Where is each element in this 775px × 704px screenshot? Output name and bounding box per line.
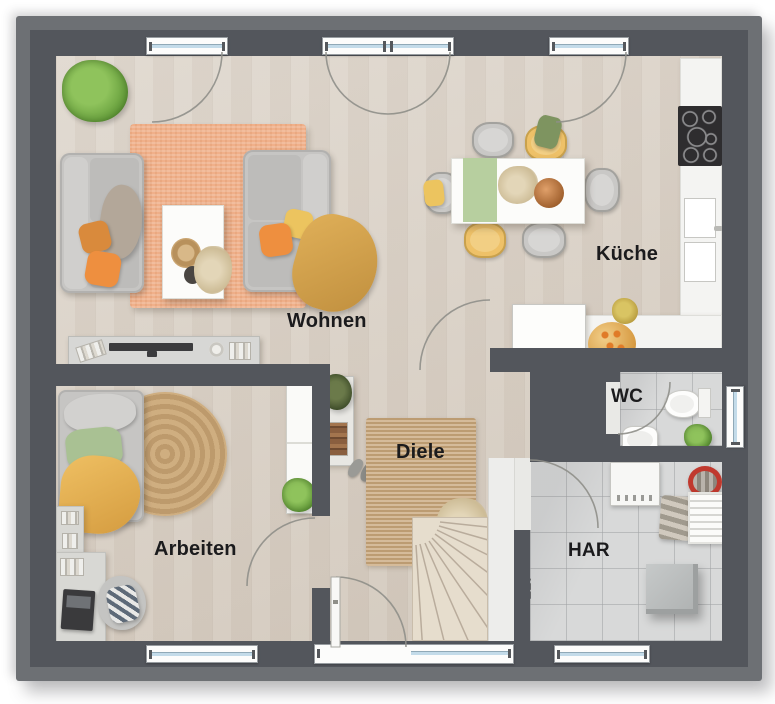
- flower-sprig: [612, 298, 638, 324]
- window-wohnen-double: [322, 37, 454, 55]
- laptop: [61, 589, 96, 631]
- winder-staircase: [412, 517, 488, 641]
- wall-core-block: [530, 348, 606, 462]
- dining-chair: [584, 168, 620, 212]
- washing-machine: [610, 462, 660, 506]
- window-arbeiten: [146, 645, 258, 663]
- room-label-wc: WC: [611, 386, 643, 408]
- books: [60, 558, 84, 576]
- wall-kueche-diele: [490, 348, 530, 372]
- floor-plan: Wohnen Küche Arbeiten Die: [0, 0, 775, 704]
- dining-chair: [522, 222, 566, 258]
- wall-right: [722, 56, 748, 641]
- table-runner: [463, 158, 497, 222]
- window-wohnen-left: [146, 37, 228, 55]
- laptop-screen: [66, 595, 91, 609]
- room-label-kueche: Küche: [596, 243, 658, 266]
- har-door-threshold: [514, 458, 531, 530]
- wall-arbeiten-diele-upper: [312, 364, 330, 516]
- stair-stringer: [488, 458, 515, 641]
- books: [75, 339, 107, 363]
- room-label-arbeiten: Arbeiten: [154, 538, 237, 561]
- window-kueche: [549, 37, 629, 55]
- drying-rack: [688, 492, 724, 544]
- books: [62, 533, 78, 549]
- wall-wohnen-arbeiten: [56, 364, 312, 386]
- toilet-tank: [698, 388, 711, 418]
- room-label-diele: Diele: [396, 441, 445, 464]
- copper-bowl: [534, 178, 564, 208]
- chair-throw-yellow: [423, 179, 446, 207]
- toilet: [664, 390, 700, 418]
- palm-plant: [62, 60, 128, 122]
- wardrobe-seam: [287, 442, 313, 444]
- entrance-door-frame: [314, 644, 514, 664]
- cooktop: [678, 106, 722, 166]
- tv-stand: [147, 351, 157, 357]
- window-wc: [726, 386, 744, 448]
- kitchen-sink: [684, 242, 716, 282]
- office-plant: [282, 478, 316, 512]
- kitchen-sink: [684, 198, 716, 238]
- dining-chair: [472, 122, 514, 158]
- tv: [109, 343, 193, 351]
- stacked-books: [328, 422, 348, 456]
- orange-pillow: [83, 249, 122, 288]
- wall-kueche-wc: [606, 348, 722, 372]
- books: [61, 511, 79, 525]
- sideboard-tv: [68, 336, 260, 365]
- wall-shelf: [56, 506, 84, 556]
- wall-wc-har: [606, 446, 722, 462]
- room-label-har: HAR: [568, 540, 610, 562]
- wall-stairs-har: [514, 530, 530, 641]
- orange-pillow: [258, 222, 294, 258]
- window-har: [554, 645, 650, 663]
- wall-wc-stub-top: [606, 372, 620, 382]
- wall-left: [30, 56, 56, 641]
- dining-chair-yellow: [464, 222, 506, 258]
- deco-roll: [209, 342, 224, 357]
- books: [229, 342, 251, 360]
- storage-box: [646, 564, 698, 614]
- wall-arbeiten-diele-lower: [312, 588, 330, 641]
- room-label-wohnen: Wohnen: [287, 310, 367, 333]
- wall-wc-stub-bottom: [606, 434, 620, 446]
